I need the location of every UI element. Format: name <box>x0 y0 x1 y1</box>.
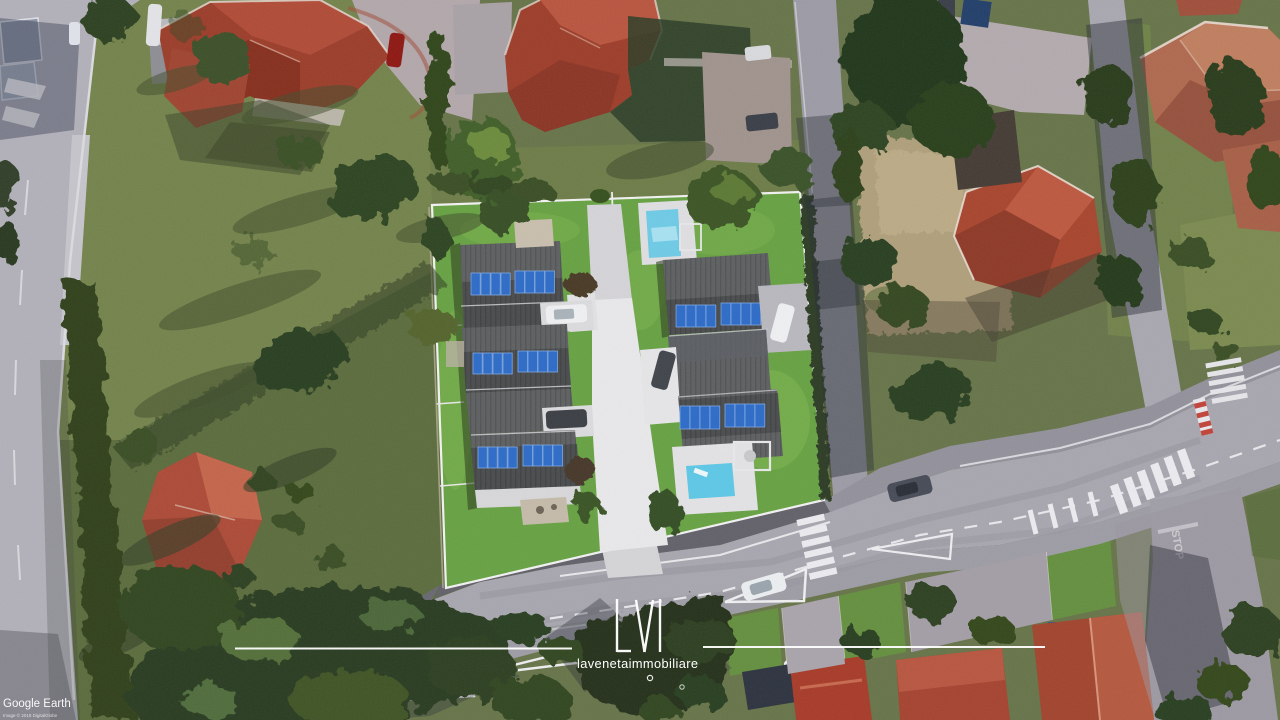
svg-text:Google Earth: Google Earth <box>3 698 71 710</box>
svg-text:Image © 2018 DigitalGlobe: Image © 2018 DigitalGlobe <box>3 712 58 718</box>
svg-text:lavenetaimmobiliare: lavenetaimmobiliare <box>577 656 698 671</box>
